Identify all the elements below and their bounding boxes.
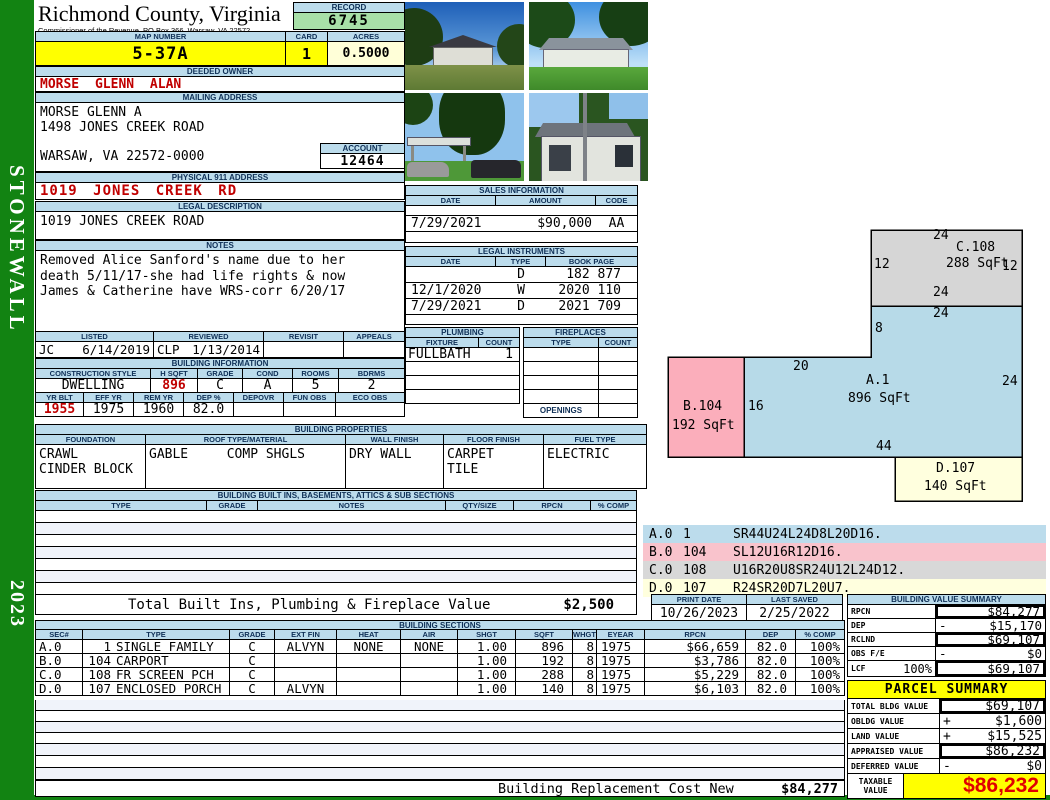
bvs-value: $84,277: [987, 604, 1040, 619]
photo-carport[interactable]: [405, 93, 524, 181]
sale-date: 7/29/2021: [406, 216, 496, 231]
parcel-value: $15,525: [987, 729, 1042, 744]
type-value: CARPORT: [116, 654, 169, 667]
card-header: CARD: [286, 32, 328, 41]
section-a-sqft: 896 SqFt: [848, 391, 911, 406]
instrument-empty-row: [405, 315, 638, 325]
county-header: Richmond County, Virginia Commissioner o…: [38, 3, 292, 32]
plumbing-empty-row: [405, 362, 520, 376]
whgt-value: 8: [573, 682, 597, 695]
photo-house-front[interactable]: [405, 2, 524, 90]
comp-value: 100%: [796, 640, 844, 653]
fixture-count-header: COUNT: [479, 338, 519, 347]
comp-value: 100%: [796, 654, 844, 667]
bvs-row-obs: OBS F/E -$0: [848, 647, 1045, 661]
bvs-row-rclnd: RCLND $69,107: [848, 633, 1045, 647]
section-a-label: A.1: [866, 373, 889, 388]
sec-value: B.0: [36, 654, 83, 667]
rpcn-header: RPCN: [645, 630, 746, 639]
legend-row-a: A.0 1 SR44U24L24D8L20D16.: [643, 525, 1046, 543]
yrblt-value: 1955: [36, 403, 84, 416]
legend-row-b: B.0 104 SL12U16R12D16.: [643, 543, 1046, 561]
parcel-row-total-bldg: TOTAL BLDG VALUE $69,107: [848, 699, 1045, 714]
bi-rpcn-header: RPCN: [514, 501, 591, 510]
binder-spine: STONEWALL 2023: [0, 0, 34, 800]
instr-bookpage: 182 877: [546, 267, 637, 282]
grade-header: GRADE: [198, 369, 243, 378]
extfin-value: ALVYN: [275, 640, 337, 653]
dim-c-right: 12: [1002, 259, 1018, 274]
instr-bookpage: 2021 709: [546, 299, 637, 314]
notes-header: NOTES: [35, 240, 405, 251]
mailing-line-1: MORSE GLENN A: [40, 105, 204, 120]
empty-row: [35, 768, 845, 780]
heat-value: [337, 668, 401, 681]
map-number-header: MAP NUMBER: [36, 32, 286, 41]
bvs-lcf-pct: 100%: [903, 662, 932, 676]
roof-value: GABLE COMP SHGLS: [146, 445, 346, 488]
building-info-block: BUILDING INFORMATION CONSTRUCTION STYLE …: [35, 358, 405, 417]
sales-amount-header: AMOUNT: [496, 196, 596, 205]
funobs-header: FUN OBS: [284, 393, 336, 402]
bvs-value: $15,170: [989, 618, 1042, 633]
sqft-value: 192: [516, 654, 573, 667]
type-code: 107: [83, 682, 111, 695]
reviewed-cell: CLP 1/13/2014: [154, 342, 264, 357]
dim-a-notch: 8: [875, 321, 883, 336]
floor-finish-value: CARPET TILE: [444, 445, 544, 488]
parcel-sign: +: [943, 714, 951, 729]
listed-date: 6/14/2019: [82, 342, 150, 357]
building-sections-block: BUILDING SECTIONS SEC# TYPE GRADE EXT FI…: [35, 620, 845, 696]
bvs-label: DEP: [851, 621, 865, 630]
taxable-label: TAXABLE VALUE: [848, 774, 904, 798]
bi-notes-header: NOTES: [258, 501, 446, 510]
grade-value: C: [230, 640, 275, 653]
legend-sec: A.0: [643, 527, 683, 542]
type-value: ENCLOSED PORCH: [116, 682, 221, 695]
last-saved-header: LAST SAVED: [747, 595, 842, 604]
depovr-header: DEPOVR: [234, 393, 284, 402]
foundation-line-2: CINDER BLOCK: [39, 462, 145, 477]
appeals-cell: [344, 342, 404, 357]
listing-block: LISTED REVIEWED REVISIT APPEALS JC 6/14/…: [35, 331, 405, 358]
grade-header: GRADE: [230, 630, 275, 639]
air-value: [401, 668, 458, 681]
notes-line-1: Removed Alice Sanford's name due to her: [40, 253, 345, 269]
legal-instruments-block: LEGAL INSTRUMENTS DATE TYPE BOOK PAGE D …: [405, 246, 638, 325]
parcel-row-appraised: APPRAISED VALUE $86,232: [848, 744, 1045, 759]
legend-code: 104: [683, 545, 733, 560]
bvs-row-rpcn: RPCN $84,277: [848, 605, 1045, 619]
photo-house-side[interactable]: [529, 2, 648, 90]
parcel-value: $1,600: [995, 714, 1042, 729]
extfin-value: [275, 654, 337, 667]
type-value: FR SCREEN PCH: [116, 668, 214, 681]
instr-type: D: [496, 267, 546, 282]
openings-label: OPENINGS: [524, 404, 599, 417]
eyear-value: 1975: [597, 654, 645, 667]
photo-grid: [405, 2, 648, 183]
record-header: RECORD: [293, 2, 405, 13]
empty-row: [35, 744, 845, 756]
legend-sec: C.0: [643, 563, 683, 578]
fuel-type-header: FUEL TYPE: [544, 435, 646, 444]
built-ins-empty-row: [35, 511, 637, 523]
bi-grade-header: GRADE: [207, 501, 258, 510]
bvs-label: RPCN: [851, 607, 870, 616]
bvs-sign: -: [939, 646, 947, 661]
cond-value: A: [243, 379, 293, 392]
rooms-header: ROOMS: [293, 369, 339, 378]
sale-amount: $90,000: [496, 216, 596, 231]
page-title: Richmond County, Virginia: [38, 3, 292, 25]
built-ins-empty-row: [35, 571, 637, 583]
revisit-header: REVISIT: [264, 332, 344, 341]
bi-comp-header: % COMP: [591, 501, 636, 510]
notes-line-2: death 5/11/17-she had life rights & now: [40, 269, 345, 285]
photo-rear-view[interactable]: [529, 93, 648, 181]
grade-value: C: [230, 682, 275, 695]
instr-date: [406, 267, 496, 282]
fireplace-empty-row: [523, 376, 638, 390]
grade-value: C: [230, 668, 275, 681]
card-value: 1: [286, 42, 328, 65]
sec-value: D.0: [36, 682, 83, 695]
legal-description-block: LEGAL DESCRIPTION 1019 JONES CREEK ROAD: [35, 201, 405, 240]
district-label: STONEWALL: [4, 165, 29, 334]
record-number: 6745: [293, 13, 405, 30]
bdrms-header: BDRMS: [339, 369, 404, 378]
listed-initials: JC: [39, 342, 54, 357]
bvs-value: $0: [1027, 646, 1042, 661]
parcel-sign: +: [943, 729, 951, 744]
reviewed-initials: CLP: [157, 342, 180, 357]
comp-value: 100%: [796, 682, 844, 695]
floor-finish-header: FLOOR FINISH: [444, 435, 544, 444]
construction-style-header: CONSTRUCTION STYLE: [36, 369, 151, 378]
shgt-value: 1.00: [458, 640, 516, 653]
empty-row: [35, 722, 845, 733]
dim-a-right: 24: [1002, 374, 1018, 389]
replacement-cost-value: $84,277: [781, 781, 838, 797]
bi-qty-header: QTY/SIZE: [446, 501, 514, 510]
instrument-row: D 182 877: [405, 267, 638, 283]
instr-bookpage: 2020 110: [546, 283, 637, 298]
fixture-count: 1: [479, 348, 519, 361]
sqft-value: 140: [516, 682, 573, 695]
extfin-value: ALVYN: [275, 682, 337, 695]
deeded-owner-block: DEEDED OWNER MORSE GLENN ALAN: [35, 66, 405, 92]
legend-row-c: C.0 108 U16R20U8SR24U12L24D12.: [643, 561, 1046, 579]
taxable-label-line1: TAXABLE: [859, 777, 893, 786]
empty-row: [35, 700, 845, 711]
heat-header: HEAT: [337, 630, 401, 639]
section-row-b: B.0 104CARPORT C 1.00 192 8 1975 $3,786 …: [35, 654, 845, 668]
sqft-value: 288: [516, 668, 573, 681]
shgt-value: 1.00: [458, 668, 516, 681]
empty-rows-block: [35, 700, 845, 780]
built-ins-empty-row: [35, 547, 637, 559]
ecoobs-header: ECO OBS: [336, 393, 404, 402]
rpcn-value: $6,103: [645, 682, 746, 695]
acres-header: ACRES: [328, 32, 404, 41]
dim-a-top: 24: [933, 306, 949, 321]
account-header: ACCOUNT: [320, 143, 405, 154]
legend-code: 1: [683, 527, 733, 542]
sale-code: AA: [596, 216, 637, 231]
sales-info-block: SALES INFORMATION DATE AMOUNT CODE 7/29/…: [405, 185, 638, 243]
built-ins-header: BUILDING BUILT INS, BASEMENTS, ATTICS & …: [35, 490, 637, 501]
dep-pct-header: DEP %: [184, 393, 234, 402]
heat-value: [337, 682, 401, 695]
fireplace-count-header: COUNT: [599, 338, 637, 347]
dim-c-bottom: 24: [933, 285, 949, 300]
parcel-label: TOTAL BLDG VALUE: [851, 702, 928, 711]
bvs-value: $69,107: [987, 661, 1040, 676]
dep-value: 82.0: [746, 640, 796, 653]
plumbing-header: PLUMBING: [405, 327, 520, 338]
bvs-label: LCF: [851, 664, 865, 673]
openings-count: [599, 404, 637, 417]
bvs-row-lcf: LCF 100% $69,107: [848, 661, 1045, 676]
empty-row: [35, 756, 845, 768]
acres-value: 0.5000: [328, 42, 404, 65]
print-date-value: 10/26/2023: [652, 605, 747, 621]
hsqft-value: 896: [151, 379, 198, 392]
building-sections-header: BUILDING SECTIONS: [35, 620, 845, 630]
section-c-label: C.108: [956, 240, 995, 255]
remyr-header: REM YR: [134, 393, 184, 402]
air-value: [401, 654, 458, 667]
print-info-block: PRINT DATE LAST SAVED 10/26/2023 2/25/20…: [651, 594, 843, 622]
account-number: 12464: [320, 154, 405, 169]
listed-header: LISTED: [36, 332, 154, 341]
mailing-line-2: 1498 JONES CREEK ROAD: [40, 120, 204, 135]
built-ins-total-value: $2,500: [563, 597, 614, 613]
empty-row: [35, 733, 845, 744]
bvs-label: RCLND: [851, 635, 875, 644]
built-ins-empty-row: [35, 559, 637, 571]
instrument-row: 12/1/2020 W 2020 110: [405, 283, 638, 299]
parcel-label: LAND VALUE: [851, 732, 899, 741]
rpcn-value: $66,659: [645, 640, 746, 653]
sec-value: C.0: [36, 668, 83, 681]
sales-code-header: CODE: [596, 196, 637, 205]
parcel-value: $69,107: [985, 699, 1040, 714]
map-number-value: 5-37A: [36, 42, 286, 65]
mailing-line-3: WARSAW, VA 22572-0000: [40, 149, 204, 164]
parcel-value: $86,232: [985, 744, 1040, 759]
fixture-value: FULLBATH: [406, 348, 479, 361]
legend-path: SR44U24L24D8L20D16.: [733, 527, 882, 542]
instr-bookpage-header: BOOK PAGE: [546, 257, 637, 266]
air-value: NONE: [401, 640, 458, 653]
bdrms-value: 2: [339, 379, 404, 392]
section-row-c: C.0 108FR SCREEN PCH C 1.00 288 8 1975 $…: [35, 668, 845, 682]
whgt-header: WHGT: [573, 630, 597, 639]
legal-description-header: LEGAL DESCRIPTION: [35, 201, 405, 212]
hsqft-header: H SQFT: [151, 369, 198, 378]
dim-c-top: 24: [933, 228, 949, 243]
sec-value: A.0: [36, 640, 83, 653]
parcel-label: APPRAISED VALUE: [851, 747, 923, 756]
shgt-header: SHGT: [458, 630, 516, 639]
building-value-summary: BUILDING VALUE SUMMARY RPCN $84,277 DEP …: [847, 594, 1046, 677]
section-row-d: D.0 107ENCLOSED PORCH C ALVYN 1.00 140 8…: [35, 682, 845, 696]
dim-c-left: 12: [874, 257, 890, 272]
physical-address-header: PHYSICAL 911 ADDRESS: [35, 172, 405, 183]
built-ins-total-label: Total Built Ins, Plumbing & Fireplace Va…: [128, 597, 490, 613]
construction-style-value: DWELLING: [36, 379, 151, 392]
plumbing-block: PLUMBING FIXTURE COUNT FULLBATH 1: [405, 327, 520, 404]
bvs-value: $69,107: [987, 632, 1040, 647]
air-header: AIR: [401, 630, 458, 639]
dep-value: 82.0: [746, 668, 796, 681]
section-b-label: B.104: [683, 399, 722, 414]
section-b-sqft: 192 SqFt: [672, 418, 735, 433]
reviewed-header: REVIEWED: [154, 332, 264, 341]
comp-value: 100%: [796, 668, 844, 681]
dep-value: 82.0: [746, 682, 796, 695]
parcel-value: $0: [1026, 759, 1042, 774]
heat-value: [337, 654, 401, 667]
listed-cell: JC 6/14/2019: [36, 342, 154, 357]
whgt-value: 8: [573, 668, 597, 681]
sales-info-header: SALES INFORMATION: [405, 185, 638, 196]
section-c-sqft: 288 SqFt: [946, 256, 1009, 271]
parcel-summary-title: PARCEL SUMMARY: [848, 681, 1045, 699]
parcel-row-obldg: OBLDG VALUE +$1,600: [848, 714, 1045, 729]
roof-header: ROOF TYPE/MATERIAL: [146, 435, 346, 444]
built-ins-empty-row: [35, 583, 637, 595]
taxable-value: $86,232: [904, 774, 1045, 798]
section-row-a: A.0 1SINGLE FAMILY C ALVYN NONE NONE 1.0…: [35, 640, 845, 654]
dep-value: 82.0: [746, 654, 796, 667]
extfin-header: EXT FIN: [275, 630, 337, 639]
section-d-sqft: 140 SqFt: [924, 479, 987, 494]
taxable-label-line2: VALUE: [863, 786, 887, 795]
legal-instruments-header: LEGAL INSTRUMENTS: [405, 246, 638, 257]
comp-header: % COMP: [796, 630, 844, 639]
extfin-value: [275, 668, 337, 681]
type-code: 108: [83, 668, 111, 681]
sketch-legend: A.0 1 SR44U24L24D8L20D16. B.0 104 SL12U1…: [643, 525, 1046, 597]
rpcn-value: $5,229: [645, 668, 746, 681]
roof-type-value: GABLE: [149, 447, 188, 462]
section-d-label: D.107: [936, 461, 975, 476]
shgt-value: 1.00: [458, 654, 516, 667]
rooms-value: 5: [293, 379, 339, 392]
building-properties-header: BUILDING PROPERTIES: [35, 424, 647, 435]
physical-address-block: PHYSICAL 911 ADDRESS 1019 JONES CREEK RD: [35, 172, 405, 200]
bi-type-header: TYPE: [36, 501, 207, 510]
notes-line-3: James & Catherine have WRS-corr 6/20/17: [40, 284, 345, 300]
building-properties-block: BUILDING PROPERTIES FOUNDATION ROOF TYPE…: [35, 424, 647, 489]
grade-value: C: [198, 379, 243, 392]
instr-date: 7/29/2021: [406, 299, 496, 314]
tax-year-label: 2023: [5, 580, 28, 628]
legend-code: 108: [683, 563, 733, 578]
rpcn-value: $3,786: [645, 654, 746, 667]
built-ins-block: BUILDING BUILT INS, BASEMENTS, ATTICS & …: [35, 490, 637, 615]
whgt-value: 8: [573, 640, 597, 653]
print-date-header: PRINT DATE: [652, 595, 747, 604]
sqft-value: 896: [516, 640, 573, 653]
funobs-value: [284, 403, 336, 416]
fireplace-empty-row: [523, 362, 638, 376]
cond-header: COND: [243, 369, 293, 378]
instr-type-header: TYPE: [496, 257, 546, 266]
last-saved-value: 2/25/2022: [747, 605, 842, 621]
bvs-row-dep: DEP -$15,170: [848, 619, 1045, 633]
fireplace-type-header: TYPE: [524, 338, 599, 347]
sqft-header: SQFT: [516, 630, 573, 639]
fixture-header: FIXTURE: [406, 338, 479, 347]
floor-finish-line-2: TILE: [447, 462, 543, 477]
foundation-line-1: CRAWL: [39, 447, 145, 462]
empty-row: [35, 711, 845, 722]
eyear-value: 1975: [597, 640, 645, 653]
fuel-type-value: ELECTRIC: [544, 445, 646, 488]
dep-header: DEP: [746, 630, 796, 639]
sales-empty-row: [405, 232, 638, 243]
built-ins-empty-row: [35, 523, 637, 535]
effyr-value: 1975: [84, 403, 134, 416]
roof-material-value: COMP SHGLS: [227, 447, 305, 462]
dim-a-seg: 20: [793, 359, 809, 374]
account-block: ACCOUNT 12464: [320, 143, 405, 169]
eyear-value: 1975: [597, 668, 645, 681]
notes-block: NOTES Removed Alice Sanford's name due t…: [35, 240, 405, 332]
building-sketch: 24 C.108 288 SqFt 12 12 24 24 8 20 A.1 8…: [650, 225, 1050, 515]
owner-name: MORSE GLENN ALAN: [36, 77, 404, 91]
built-ins-empty-row: [35, 535, 637, 547]
bvs-sign: -: [939, 618, 947, 633]
instr-date: 12/1/2020: [406, 283, 496, 298]
shgt-value: 1.00: [458, 682, 516, 695]
parcel-row-deferred: DEFERRED VALUE -$0: [848, 759, 1045, 774]
dim-ab-shared: 16: [748, 399, 764, 414]
eyear-value: 1975: [597, 682, 645, 695]
instrument-row: 7/29/2021 D 2021 709: [405, 299, 638, 315]
type-code: 1: [83, 640, 111, 653]
legend-sec: B.0: [643, 545, 683, 560]
sales-empty-row: [405, 206, 638, 216]
fireplaces-block: FIREPLACES TYPE COUNT OPENINGS: [523, 327, 638, 418]
eyear-header: EYEAR: [597, 630, 645, 639]
grade-value: C: [230, 654, 275, 667]
effyr-header: EFF YR: [84, 393, 134, 402]
air-value: [401, 682, 458, 695]
replacement-cost-row: Building Replacement Cost New $84,277: [35, 780, 845, 797]
physical-address-value: 1019 JONES CREEK RD: [36, 183, 404, 199]
yrblt-header: YR BLT: [36, 393, 84, 402]
type-code: 104: [83, 654, 111, 667]
fireplace-empty-row: [523, 390, 638, 404]
plumbing-empty-row: [405, 376, 520, 390]
parcel-label: DEFERRED VALUE: [851, 762, 918, 771]
wall-finish-header: WALL FINISH: [346, 435, 444, 444]
parcel-label: OBLDG VALUE: [851, 717, 904, 726]
heat-value: NONE: [337, 640, 401, 653]
legend-path: U16R20U8SR24U12L24D12.: [733, 563, 905, 578]
type-value: SINGLE FAMILY: [116, 640, 214, 653]
building-info-header: BUILDING INFORMATION: [35, 358, 405, 369]
reviewed-date: 1/13/2014: [192, 342, 260, 357]
fireplaces-header: FIREPLACES: [523, 327, 638, 338]
whgt-value: 8: [573, 654, 597, 667]
